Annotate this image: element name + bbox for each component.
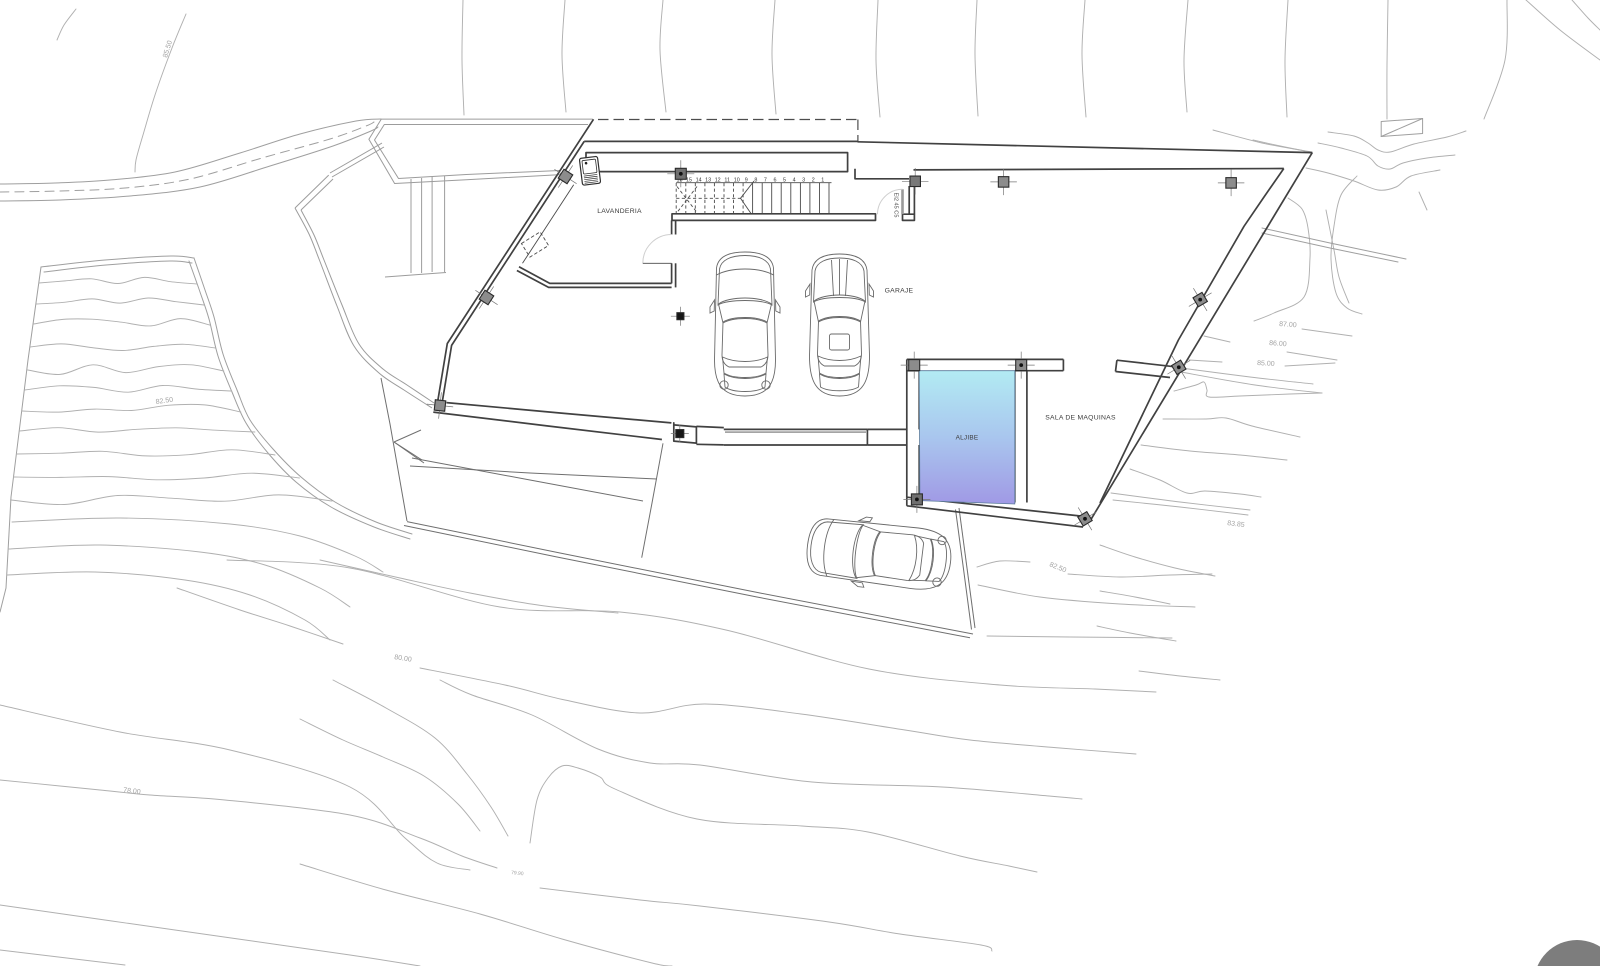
svg-text:11: 11: [724, 178, 730, 184]
svg-text:86.00: 86.00: [1269, 340, 1287, 348]
svg-text:2: 2: [812, 178, 815, 184]
svg-text:LAVANDERIA: LAVANDERIA: [597, 208, 642, 215]
svg-text:5: 5: [783, 178, 786, 184]
svg-text:9: 9: [745, 178, 748, 184]
svg-text:14: 14: [696, 178, 702, 184]
svg-text:3: 3: [802, 178, 805, 184]
svg-text:13: 13: [705, 178, 711, 184]
svg-text:10: 10: [734, 178, 740, 184]
svg-text:15: 15: [686, 178, 692, 184]
svg-text:87.00: 87.00: [1279, 321, 1297, 329]
svg-text:4: 4: [793, 178, 796, 184]
svg-text:12: 12: [715, 178, 721, 184]
svg-text:1: 1: [821, 178, 824, 184]
svg-text:EI2 45 C5: EI2 45 C5: [893, 193, 899, 218]
svg-text:85.00: 85.00: [1257, 360, 1275, 368]
svg-text:8: 8: [754, 178, 757, 184]
svg-text:SALA DE MAQUINAS: SALA DE MAQUINAS: [1045, 415, 1116, 422]
svg-text:ALJIBE: ALJIBE: [956, 435, 979, 442]
svg-text:7: 7: [764, 178, 767, 184]
svg-text:GARAJE: GARAJE: [885, 288, 914, 295]
svg-text:6: 6: [774, 178, 777, 184]
